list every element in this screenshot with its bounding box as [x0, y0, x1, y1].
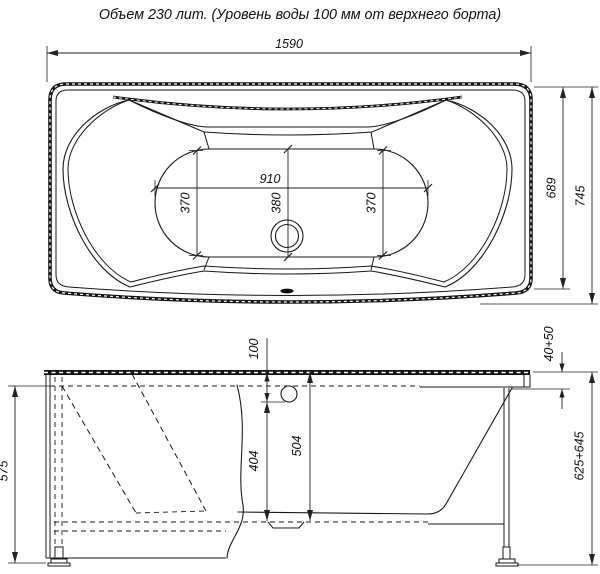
overflow-slot [281, 289, 294, 294]
dim-bottom-width-right-label: 370 [365, 193, 379, 214]
left-foot [48, 547, 70, 566]
inner-rim-curve [113, 97, 462, 109]
tub-inner-offset-edge [56, 90, 525, 296]
dim-bottom-width-left: 370 [179, 147, 204, 260]
ledge-slant-bottom-left [204, 257, 209, 270]
drain [271, 220, 303, 252]
dim-inner-depth: 504 [290, 372, 310, 521]
dim-water-level-label: 100 [247, 339, 261, 360]
bowl-outline-outer [63, 100, 512, 287]
dim-bottom-length: 910 [151, 172, 432, 196]
dim-overall-height-label: 625+645 [573, 431, 587, 480]
rim-end-cap [524, 375, 530, 387]
dim-overall-length: 1590 [47, 37, 531, 82]
dim-bottom-length-label: 910 [260, 172, 281, 186]
side-view: 100 404 504 575 40+50 [0, 326, 598, 566]
ledge-slant-top-right [371, 132, 374, 149]
interior-bottom-profile [238, 388, 512, 514]
dim-overall-length-label: 1590 [275, 37, 303, 51]
dim-depth-below-water-label: 404 [247, 451, 261, 472]
drawing-title: Объем 230 лит. (Уровень воды 100 мм от в… [99, 7, 501, 23]
top-view: 1590 689 745 910 [47, 37, 598, 304]
ledge-slant-bottom-right [371, 257, 374, 270]
overflow-hole [281, 386, 297, 402]
drain-bump [268, 522, 304, 528]
dim-inner-depth-label: 504 [290, 436, 304, 457]
dim-bottom-width-left-label: 370 [179, 193, 193, 214]
drain-inner-ring [276, 225, 299, 248]
dim-rim-width: 689 [534, 87, 598, 289]
dim-overall-width-label: 745 [574, 186, 588, 207]
dim-bottom-width-center-label: 380 [270, 193, 284, 214]
dim-panel-height: 575 [0, 386, 50, 563]
dim-bottom-width-right: 370 [365, 147, 392, 260]
dim-overall-width: 745 [480, 87, 598, 304]
ledge-slant-top-left [204, 132, 209, 149]
dim-overall-height: 625+645 [573, 372, 593, 565]
drawing-canvas: Объем 230 лит. (Уровень воды 100 мм от в… [0, 0, 600, 574]
bathtub-technical-drawing: Объем 230 лит. (Уровень воды 100 мм от в… [0, 0, 600, 574]
dim-depth-below-water: 404 [247, 402, 267, 521]
tub-floor-outline [155, 149, 428, 257]
break-line [227, 385, 243, 558]
right-leg [496, 388, 518, 566]
dim-rim-width-label: 689 [545, 178, 559, 199]
dim-rim-drop-label: 40+50 [542, 326, 556, 361]
dim-panel-height-label: 575 [0, 461, 11, 482]
dim-rim-drop: 40+50 [512, 326, 598, 409]
bowl-outline-inner [68, 100, 507, 282]
